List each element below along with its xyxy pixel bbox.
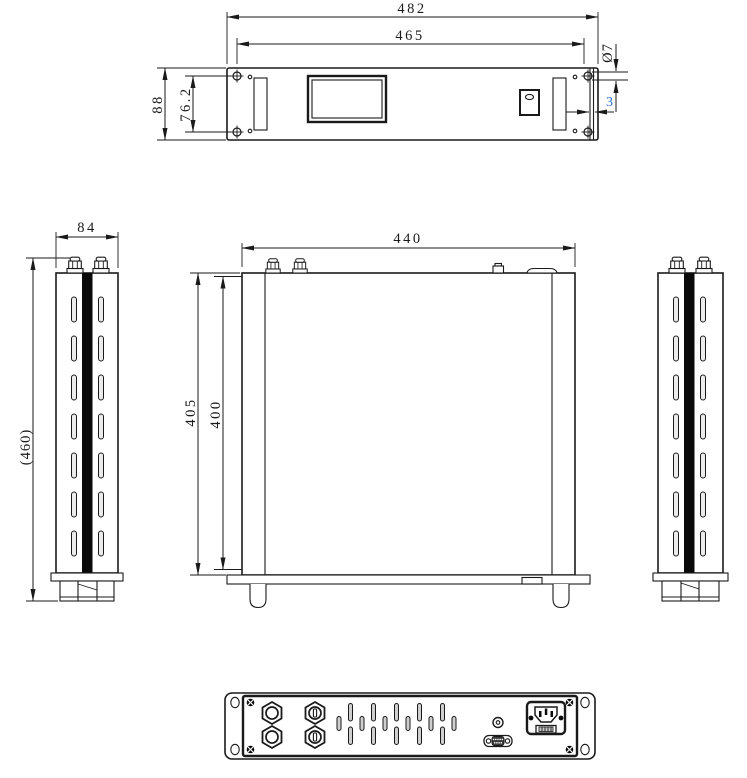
hex-connector <box>696 257 712 273</box>
side-foot <box>653 573 728 601</box>
hex-connector <box>67 257 83 273</box>
dim-side-width: 84 <box>77 220 97 236</box>
engineering-drawing: 482 465 88 76.2 Ø7 3 <box>0 0 747 778</box>
drawing-sheet: 482 465 88 76.2 Ø7 3 <box>0 0 747 778</box>
dim-total-height-ref: (460) <box>18 429 34 465</box>
hex-connector <box>293 259 307 273</box>
side-stripe <box>684 273 695 573</box>
dim-depth-body: 400 <box>208 399 224 428</box>
dim-ear-hole-spacing: 76.2 <box>178 86 194 121</box>
inlet-pin <box>545 709 548 716</box>
side-foot <box>51 573 123 601</box>
rack-handle-slot <box>553 78 566 130</box>
fuse-holder <box>536 726 556 734</box>
dim-mount-span: 465 <box>395 28 424 44</box>
hex-connector <box>266 259 280 273</box>
dim-top-width: 440 <box>393 231 422 247</box>
inlet-screw <box>529 716 534 721</box>
hex-connector <box>93 257 109 273</box>
front-panel <box>227 68 598 140</box>
dim-ear-thickness: 3 <box>606 95 614 110</box>
rubber-foot <box>250 584 266 608</box>
rack-handle-slot <box>254 78 267 130</box>
corner-screw <box>566 699 574 707</box>
corner-screw <box>247 699 255 707</box>
flange-notch <box>522 578 542 585</box>
top-body <box>242 273 575 575</box>
display-window <box>308 76 386 122</box>
dim-front-height: 88 <box>150 94 166 114</box>
dim-depth-overall: 405 <box>183 397 199 426</box>
rubber-foot <box>553 584 569 608</box>
small-connector <box>493 264 504 274</box>
top-foot-flange <box>227 575 590 608</box>
hex-connector <box>669 257 685 273</box>
inlet-pin <box>551 711 554 717</box>
dim-hole-diameter: Ø7 <box>600 43 616 63</box>
left-side-view <box>51 257 123 601</box>
top-view <box>227 259 590 608</box>
front-view <box>227 68 598 140</box>
inlet-pin <box>539 711 542 717</box>
db9-connector <box>484 736 512 747</box>
inlet-screw <box>559 716 564 721</box>
power-inlet <box>527 702 565 734</box>
dim-overall-width: 482 <box>397 1 426 17</box>
dome-bump <box>527 269 557 274</box>
side-stripe <box>82 273 93 573</box>
corner-screw <box>247 746 255 754</box>
corner-screw <box>566 746 574 754</box>
rear-view <box>225 693 595 759</box>
right-side-view <box>653 257 728 601</box>
power-switch <box>520 90 539 115</box>
